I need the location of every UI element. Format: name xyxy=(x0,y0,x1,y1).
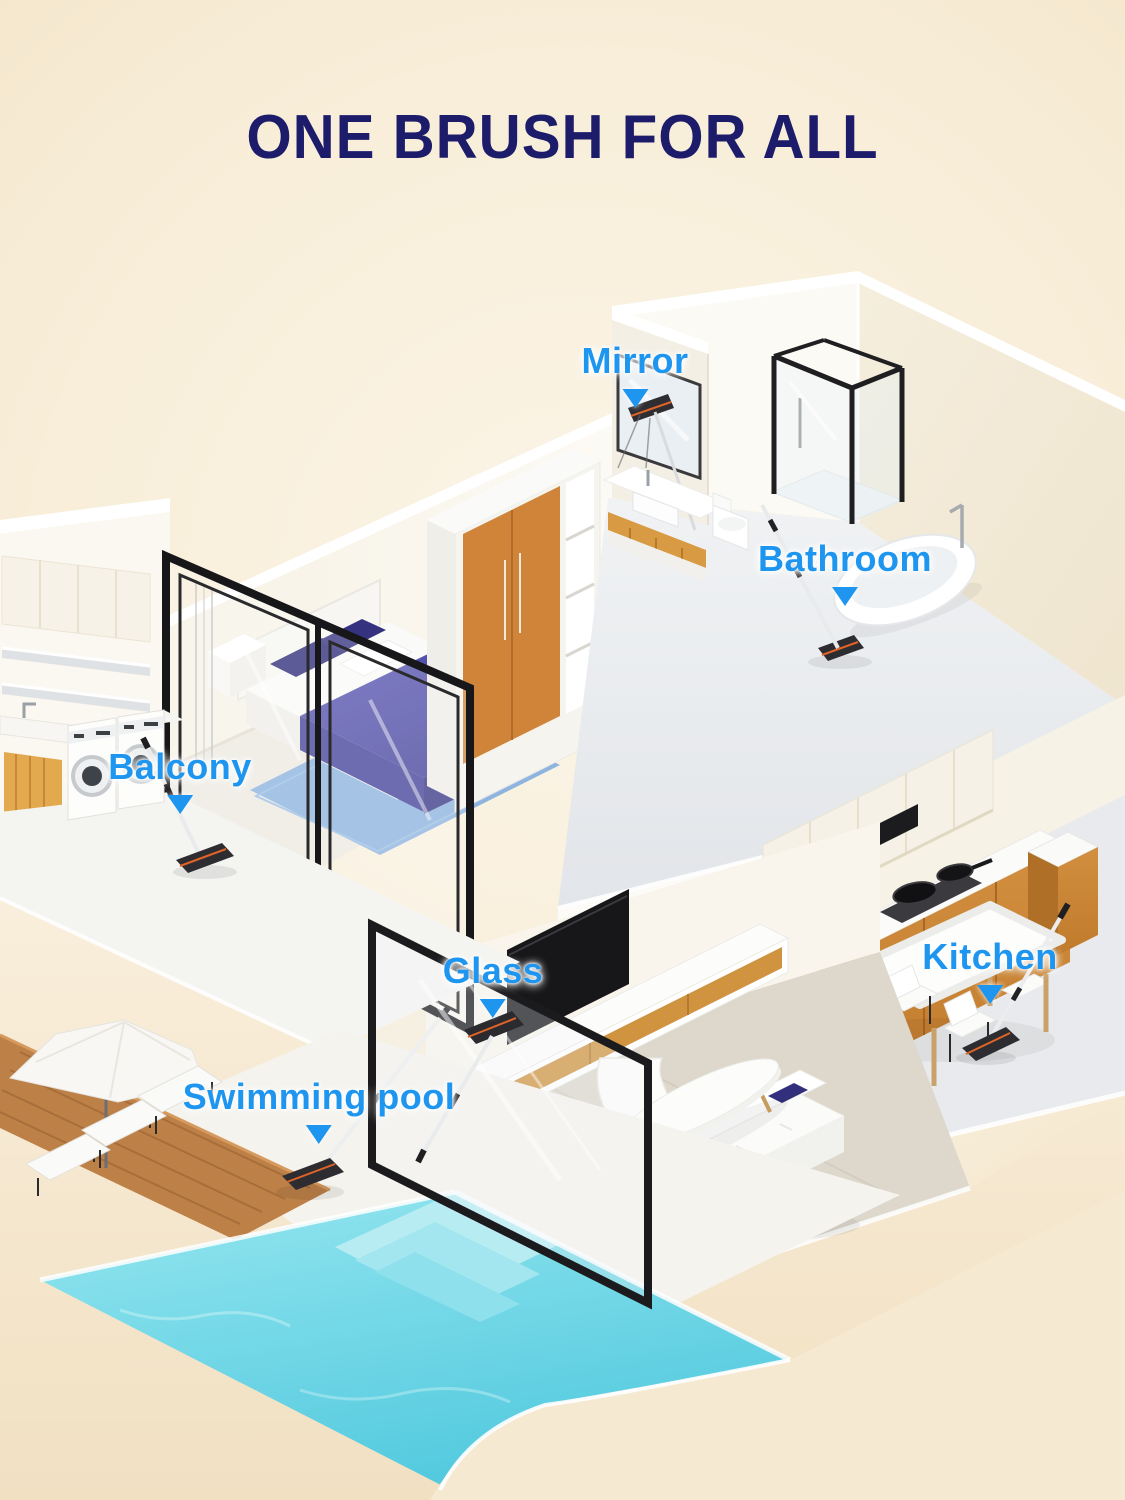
isometric-house-illustration xyxy=(0,0,1125,1500)
product-infographic: ONE BRUSH FOR ALL xyxy=(0,0,1125,1500)
